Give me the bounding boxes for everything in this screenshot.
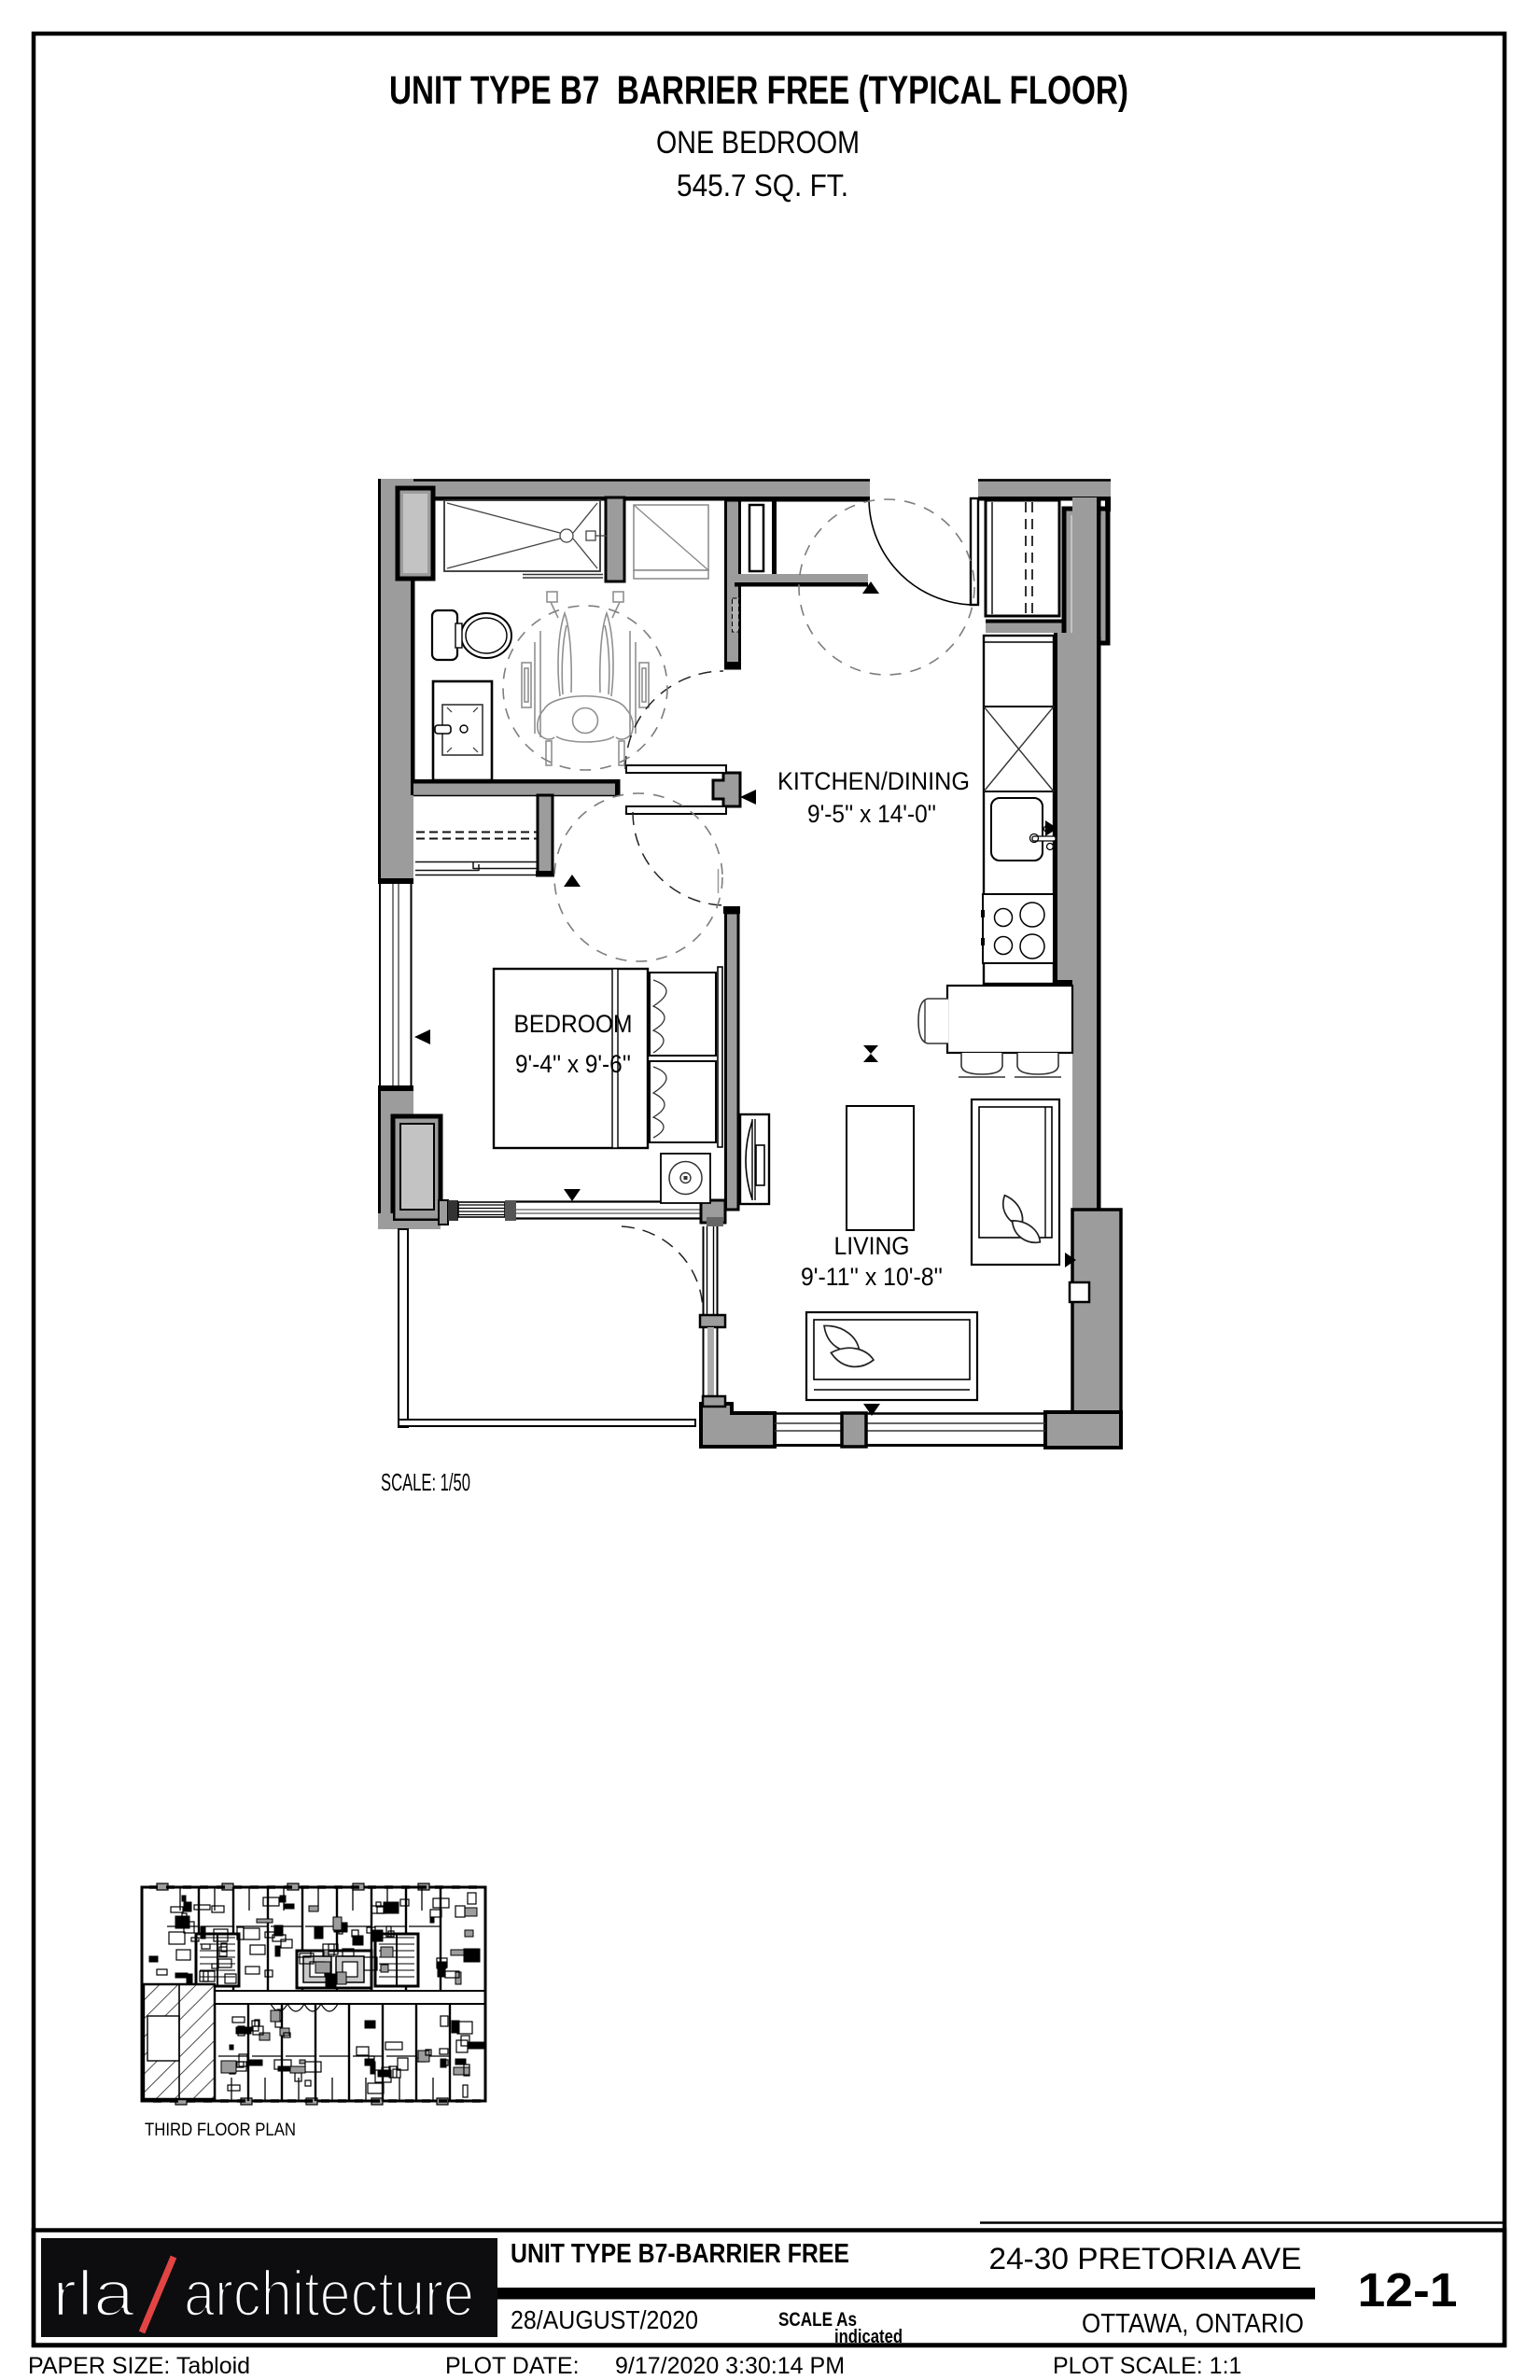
svg-text:9/17/2020 3:30:14 PM: 9/17/2020 3:30:14 PM (615, 2353, 845, 2379)
svg-text:indicated: indicated (834, 2327, 903, 2347)
svg-text:architecture: architecture (184, 2258, 474, 2330)
svg-text:OTTAWA, ONTARIO: OTTAWA, ONTARIO (1082, 2309, 1304, 2339)
svg-text:LIVING: LIVING (834, 1232, 910, 1260)
svg-text:545.7 SQ. FT.: 545.7 SQ. FT. (677, 168, 848, 203)
svg-text:9'-4'' x 9'-6'': 9'-4'' x 9'-6'' (515, 1050, 631, 1078)
svg-text:9'-11'' x 10'-8'': 9'-11'' x 10'-8'' (801, 1263, 943, 1291)
svg-text:THIRD FLOOR PLAN: THIRD FLOOR PLAN (145, 2121, 296, 2140)
svg-text:KITCHEN/DINING: KITCHEN/DINING (777, 767, 970, 795)
svg-text:9'-5'' x 14'-0'': 9'-5'' x 14'-0'' (807, 800, 936, 828)
svg-text:BEDROOM: BEDROOM (514, 1010, 633, 1038)
svg-text:28/AUGUST/2020: 28/AUGUST/2020 (511, 2305, 698, 2334)
svg-text:12-1: 12-1 (1358, 2263, 1458, 2317)
svg-text:24-30 PRETORIA AVE: 24-30 PRETORIA AVE (989, 2242, 1302, 2275)
svg-text:PAPER SIZE: Tabloid: PAPER SIZE: Tabloid (28, 2353, 250, 2379)
svg-text:UNIT TYPE B7-BARRIER FREE: UNIT TYPE B7-BARRIER FREE (511, 2239, 849, 2269)
svg-text:UNIT TYPE B7 BARRIER FREE (TY: UNIT TYPE B7 BARRIER FREE (TYPICAL FLOOR… (389, 68, 1128, 113)
svg-text:PLOT SCALE: 1:1: PLOT SCALE: 1:1 (1053, 2353, 1241, 2379)
svg-text:PLOT DATE:: PLOT DATE: (445, 2353, 580, 2379)
svg-text:SCALE: 1/50: SCALE: 1/50 (381, 1468, 470, 1496)
svg-text:ONE BEDROOM: ONE BEDROOM (656, 125, 860, 161)
svg-text:rla: rla (52, 2258, 135, 2330)
